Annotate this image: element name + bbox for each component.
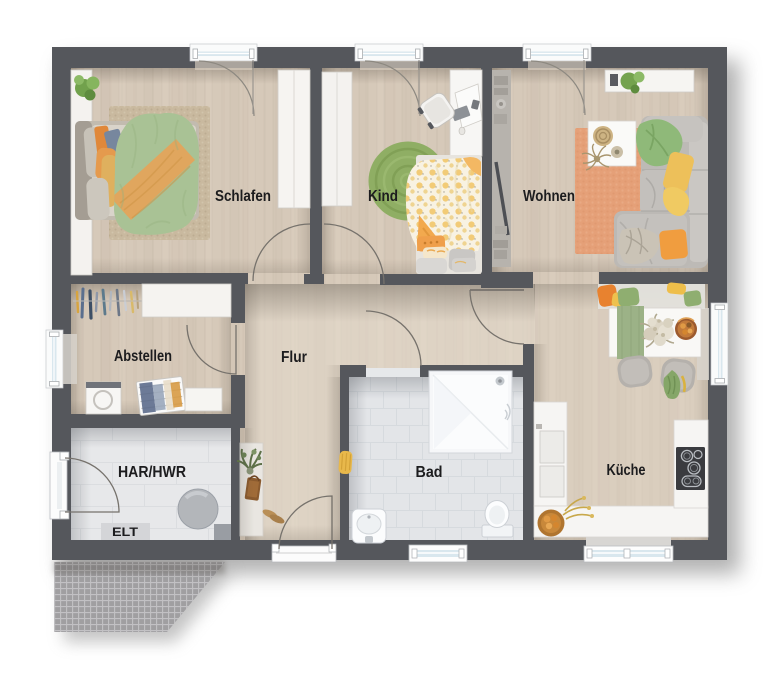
svg-text:Abstellen: Abstellen: [114, 348, 172, 365]
svg-text:Küche: Küche: [607, 462, 646, 479]
svg-text:Bad: Bad: [416, 464, 443, 481]
svg-text:Wohnen: Wohnen: [523, 188, 575, 205]
svg-text:Flur: Flur: [281, 349, 307, 366]
svg-text:Kind: Kind: [368, 188, 398, 205]
svg-text:ELT: ELT: [112, 525, 139, 539]
svg-text:HAR/HWR: HAR/HWR: [118, 464, 186, 481]
svg-text:Schlafen: Schlafen: [215, 188, 271, 205]
